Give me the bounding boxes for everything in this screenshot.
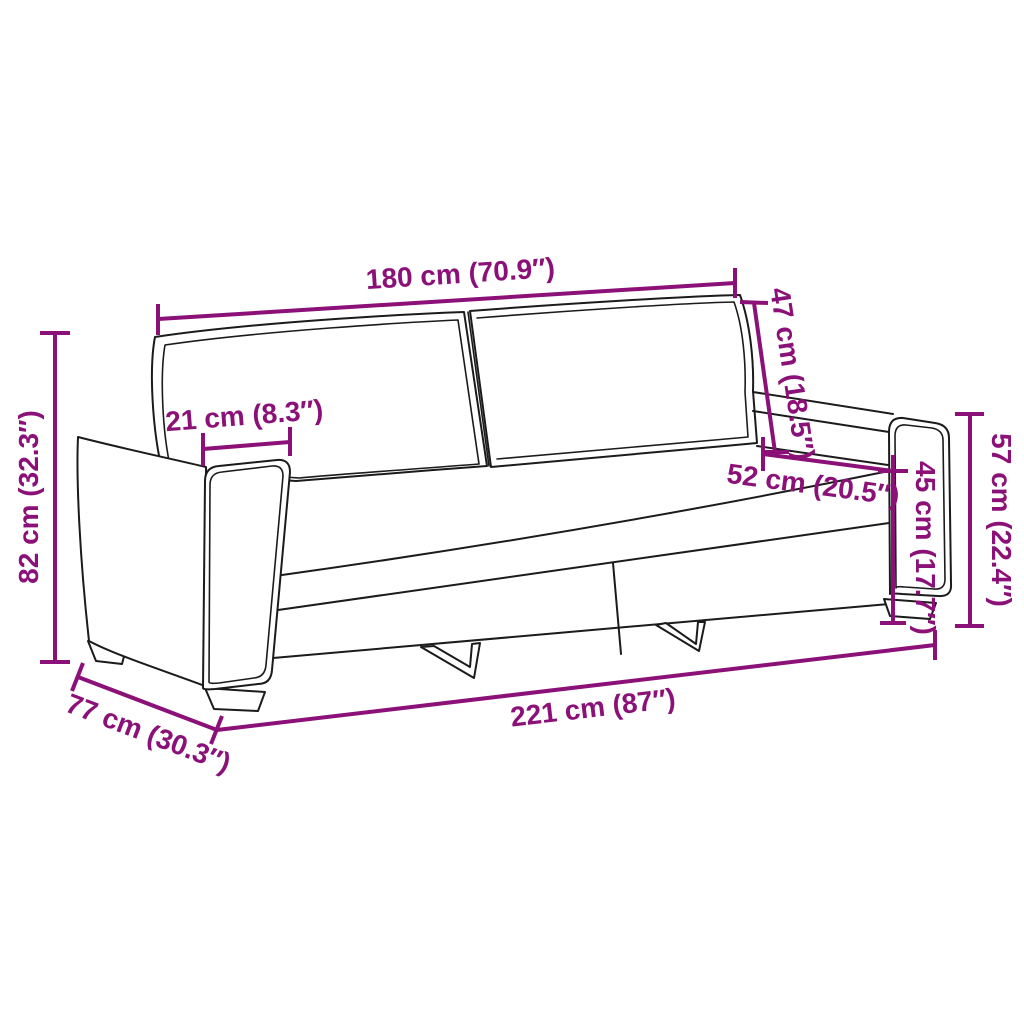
right-armrest-top-edge — [753, 392, 893, 414]
left-armrest-front — [203, 460, 290, 689]
dimension-label-back-width: 180 cm (70.9″) — [365, 252, 556, 295]
dimension-total-height: 82 cm (32.3″) — [13, 333, 70, 662]
dimension-total-width: 221 cm (87″) — [217, 630, 935, 733]
dimension-label-seat-height: 45 cm (17.7″) — [910, 461, 941, 635]
dimension-label-total-depth: 77 cm (30.3″) — [62, 688, 235, 779]
metal-leg-right — [656, 622, 705, 651]
diagram-canvas: 180 cm (70.9″) 47 cm (18.5″) 21 cm (8.3″… — [0, 0, 1024, 1024]
dimension-label-total-width: 221 cm (87″) — [509, 682, 677, 732]
sofa-illustration — [77, 295, 951, 711]
metal-leg-left — [421, 643, 480, 678]
seat-base-seam — [278, 523, 889, 610]
sofa-dimension-diagram: 180 cm (70.9″) 47 cm (18.5″) 21 cm (8.3″… — [0, 0, 1024, 1024]
dimension-label-seat-depth: 52 cm (20.5″) — [725, 458, 901, 511]
dimension-armrest-height: 57 cm (22.4″) — [955, 414, 1017, 626]
foot-front-center — [205, 688, 265, 711]
seat-split — [613, 563, 621, 654]
dimension-label-total-height: 82 cm (32.3″) — [13, 410, 44, 584]
dimension-label-armrest-height: 57 cm (22.4″) — [986, 433, 1017, 607]
back-cushion-right — [470, 295, 757, 467]
base-bottom-edge — [273, 604, 889, 658]
